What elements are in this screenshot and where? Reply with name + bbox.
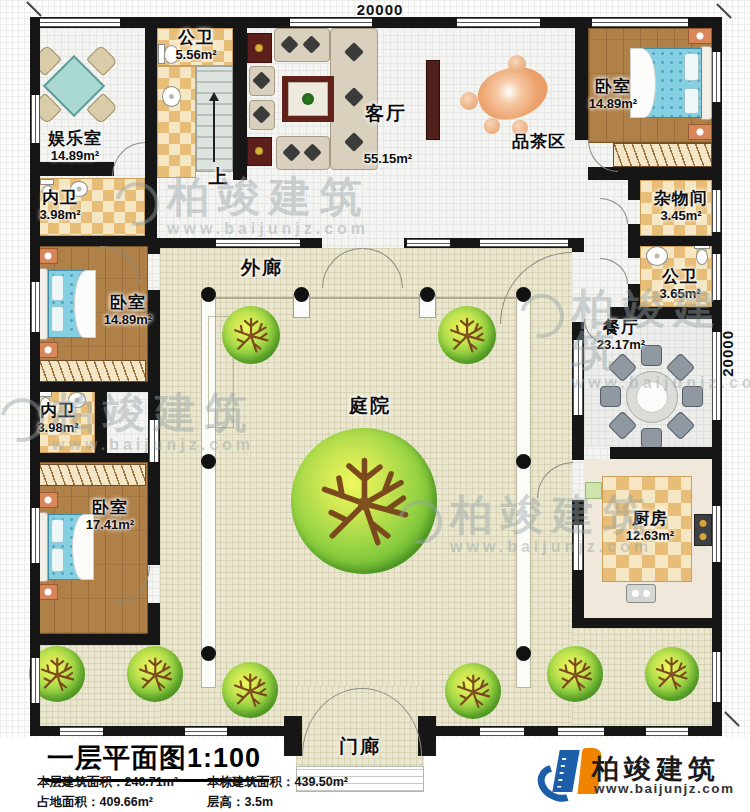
sink bbox=[646, 246, 668, 266]
porch-jamb bbox=[284, 716, 302, 756]
room-label-entertainment: 娱乐室 14.89m² bbox=[30, 130, 120, 163]
wardrobe-southwest bbox=[38, 464, 146, 486]
stat-land-area: 占地面积：409.66m² bbox=[37, 794, 197, 811]
stat-building-area: 本栋建筑面积：439.50m² bbox=[207, 774, 348, 791]
room-label-veranda: 外廊 bbox=[222, 258, 302, 279]
room-label-inner-bath-north: 内卫 3.98m² bbox=[24, 189, 96, 222]
window bbox=[31, 508, 40, 563]
room-label-public-bath-east: 公卫 3.65m² bbox=[642, 268, 718, 301]
floor-plan: 娱乐室 14.89m² 公卫 5.56m² 客厅 55.15m² 品茶区 卧室 … bbox=[0, 0, 750, 812]
window bbox=[185, 727, 227, 736]
area-statistics: 本层建筑面积：240.71m² 本栋建筑面积：439.50m² 占地面积：409… bbox=[37, 774, 348, 811]
pillow bbox=[51, 275, 64, 301]
window bbox=[480, 727, 524, 736]
dining-chair bbox=[641, 428, 662, 449]
tv-wall-panel bbox=[426, 60, 440, 140]
window bbox=[216, 239, 300, 247]
window bbox=[31, 658, 40, 703]
column bbox=[201, 454, 216, 469]
colonnade-beam bbox=[216, 297, 516, 299]
nightstand bbox=[688, 28, 712, 44]
window bbox=[646, 727, 688, 736]
wall bbox=[30, 634, 160, 645]
window bbox=[573, 525, 583, 570]
nightstand bbox=[38, 342, 58, 358]
wall bbox=[30, 162, 114, 176]
dimension-right: 20000 bbox=[719, 330, 736, 377]
colonnade-strip-east bbox=[516, 296, 531, 688]
window bbox=[290, 18, 372, 27]
window bbox=[712, 52, 721, 102]
pillow bbox=[684, 88, 699, 114]
pillow bbox=[51, 548, 64, 572]
stove bbox=[694, 514, 712, 546]
cabinet-knob bbox=[255, 147, 263, 155]
wall bbox=[30, 453, 148, 462]
dining-chair bbox=[600, 386, 621, 407]
tea-stool bbox=[484, 118, 500, 134]
column bbox=[201, 287, 216, 302]
column bbox=[201, 646, 216, 661]
stat-floor-area: 本层建筑面积：240.71m² bbox=[37, 774, 197, 791]
window bbox=[40, 18, 120, 27]
window bbox=[480, 239, 568, 247]
bath-floor-north bbox=[157, 66, 196, 178]
room-label-porch: 门廊 bbox=[328, 737, 392, 758]
window bbox=[407, 239, 450, 247]
tea-stool bbox=[508, 55, 526, 73]
tree bbox=[127, 646, 183, 702]
wall bbox=[145, 17, 157, 178]
room-label-inner-bath-south: 内卫 3.98m² bbox=[22, 402, 94, 435]
wall bbox=[95, 390, 107, 453]
room-label-bedroom-southwest: 卧室 17.41m² bbox=[70, 499, 150, 532]
window bbox=[712, 652, 721, 702]
nightstand bbox=[38, 248, 58, 264]
window bbox=[149, 420, 159, 462]
room-label-dining: 餐厅 23.17m² bbox=[582, 319, 660, 352]
wall bbox=[233, 17, 247, 180]
cabinet-knob bbox=[255, 44, 263, 52]
room-label-storage: 杂物间 3.45m² bbox=[640, 190, 722, 223]
column bbox=[420, 287, 435, 302]
wall bbox=[30, 236, 148, 246]
column bbox=[294, 287, 309, 302]
tree bbox=[445, 663, 501, 719]
dimension-top: 20000 bbox=[350, 1, 410, 18]
room-label-living: 客厅 bbox=[346, 104, 426, 125]
pillow bbox=[51, 519, 64, 543]
tree bbox=[438, 306, 496, 364]
nightstand bbox=[38, 492, 58, 508]
wall bbox=[640, 236, 722, 246]
brand-url: www.baijunjz.com bbox=[594, 781, 735, 796]
stat-floor-height: 层高：3.5m bbox=[207, 794, 348, 811]
room-label-courtyard: 庭院 bbox=[330, 396, 410, 417]
wall bbox=[572, 238, 584, 252]
stairs-up-label: 上 bbox=[204, 167, 234, 188]
kitchen-sink bbox=[626, 584, 656, 603]
wall bbox=[148, 238, 160, 254]
wardrobe-northeast bbox=[613, 143, 712, 167]
column bbox=[516, 454, 531, 469]
wall bbox=[628, 224, 640, 258]
dining-table-top bbox=[636, 381, 668, 413]
wall bbox=[30, 382, 148, 392]
room-label-kitchen: 厨房 12.63m² bbox=[612, 510, 688, 543]
toilet-bowl bbox=[696, 249, 708, 265]
tree bbox=[222, 662, 278, 718]
pillow bbox=[684, 53, 699, 81]
tree bbox=[222, 306, 280, 364]
window bbox=[60, 727, 103, 736]
room-label-bedroom-northeast: 卧室 14.89m² bbox=[572, 78, 654, 111]
window bbox=[31, 282, 40, 332]
sink bbox=[162, 86, 181, 107]
window bbox=[457, 18, 540, 27]
door-mat bbox=[585, 482, 602, 499]
tree bbox=[645, 647, 699, 701]
stairs-arrow-line bbox=[213, 100, 215, 162]
tea-stool bbox=[460, 92, 478, 110]
nightstand bbox=[688, 124, 712, 140]
room-area-living: 55.15m² bbox=[342, 152, 434, 166]
pillow bbox=[51, 306, 64, 332]
potted-plant bbox=[302, 93, 314, 105]
window bbox=[712, 506, 721, 562]
wall bbox=[628, 180, 640, 200]
dining-chair bbox=[682, 386, 703, 407]
wardrobe-west bbox=[38, 360, 146, 382]
room-label-public-bath-north: 公卫 5.56m² bbox=[158, 29, 234, 62]
courtyard-big-tree bbox=[291, 428, 437, 574]
nightstand bbox=[38, 584, 58, 600]
window bbox=[558, 727, 604, 736]
wall bbox=[145, 178, 157, 238]
wall bbox=[610, 447, 722, 459]
wall bbox=[628, 284, 640, 307]
room-label-tea-area: 品茶区 bbox=[498, 133, 580, 152]
tree bbox=[547, 646, 603, 702]
window bbox=[592, 18, 688, 27]
wall bbox=[572, 618, 722, 628]
room-label-bedroom-west: 卧室 14.89m² bbox=[92, 294, 164, 327]
column bbox=[516, 646, 531, 661]
